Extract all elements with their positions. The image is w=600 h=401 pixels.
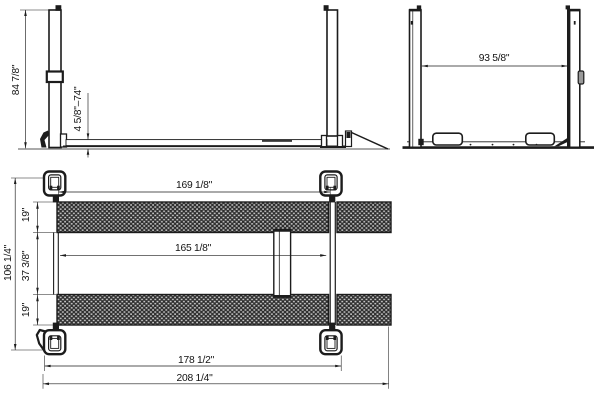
wheel-pad-right bbox=[526, 133, 555, 145]
plan-column-front-bottom bbox=[44, 330, 65, 354]
plan-column-rear-bottom bbox=[320, 330, 341, 354]
dimension-lines bbox=[11, 10, 568, 389]
column-cap bbox=[417, 5, 421, 9]
dim-label-column-outer-length: 178 1/2" bbox=[178, 355, 214, 365]
dim-label-runway-width-bottom: 19" bbox=[22, 302, 32, 316]
dim-label-runway-inner-length: 165 1/8" bbox=[175, 243, 211, 253]
dim-runway-widths-line bbox=[33, 202, 56, 325]
dim-label-width-between-columns: 93 5/8" bbox=[479, 53, 510, 63]
side-view-rear-column bbox=[327, 10, 338, 136]
jack-tray bbox=[274, 230, 291, 298]
dim-width-between-columns-line bbox=[422, 65, 568, 68]
lock-release-hook bbox=[40, 131, 50, 148]
carriage-lock-collar bbox=[47, 72, 63, 83]
dim-label-distance-between-runways: 37 3/8" bbox=[22, 251, 32, 282]
runway-top bbox=[57, 202, 329, 233]
dim-label-overall-length: 208 1/4" bbox=[176, 373, 212, 383]
dim-label-lift-height-range: 4 5/8"–74" bbox=[74, 86, 84, 131]
wheel-pad-left bbox=[433, 133, 463, 145]
power-unit bbox=[578, 71, 584, 84]
column-cap bbox=[56, 5, 62, 11]
end-view bbox=[403, 5, 595, 147]
runway-bottom-overhang bbox=[337, 295, 391, 326]
column-cap bbox=[324, 5, 329, 11]
dim-lift-height-range-line bbox=[87, 93, 90, 158]
dim-label-overall-width: 106 1/4" bbox=[3, 245, 13, 281]
dim-label-length-between-columns: 169 1/8" bbox=[176, 180, 212, 190]
dim-label-runway-width-top: 19" bbox=[22, 208, 32, 222]
plan-view bbox=[37, 172, 391, 355]
anchor-bracket bbox=[418, 139, 423, 145]
column-cap bbox=[566, 5, 570, 9]
drawing-canvas bbox=[0, 0, 600, 401]
drive-up-ramp bbox=[352, 133, 389, 150]
dim-column-height-line bbox=[24, 10, 27, 148]
four-post-lift-dimension-drawing: 84 7/8" 4 5/8"–74" 93 5/8" 169 1/8" 165 … bbox=[0, 0, 600, 401]
dim-label-column-height: 84 7/8" bbox=[11, 65, 21, 96]
runway-bottom bbox=[57, 295, 329, 326]
runway-top-overhang bbox=[337, 202, 391, 233]
end-view-left-column bbox=[410, 10, 422, 147]
